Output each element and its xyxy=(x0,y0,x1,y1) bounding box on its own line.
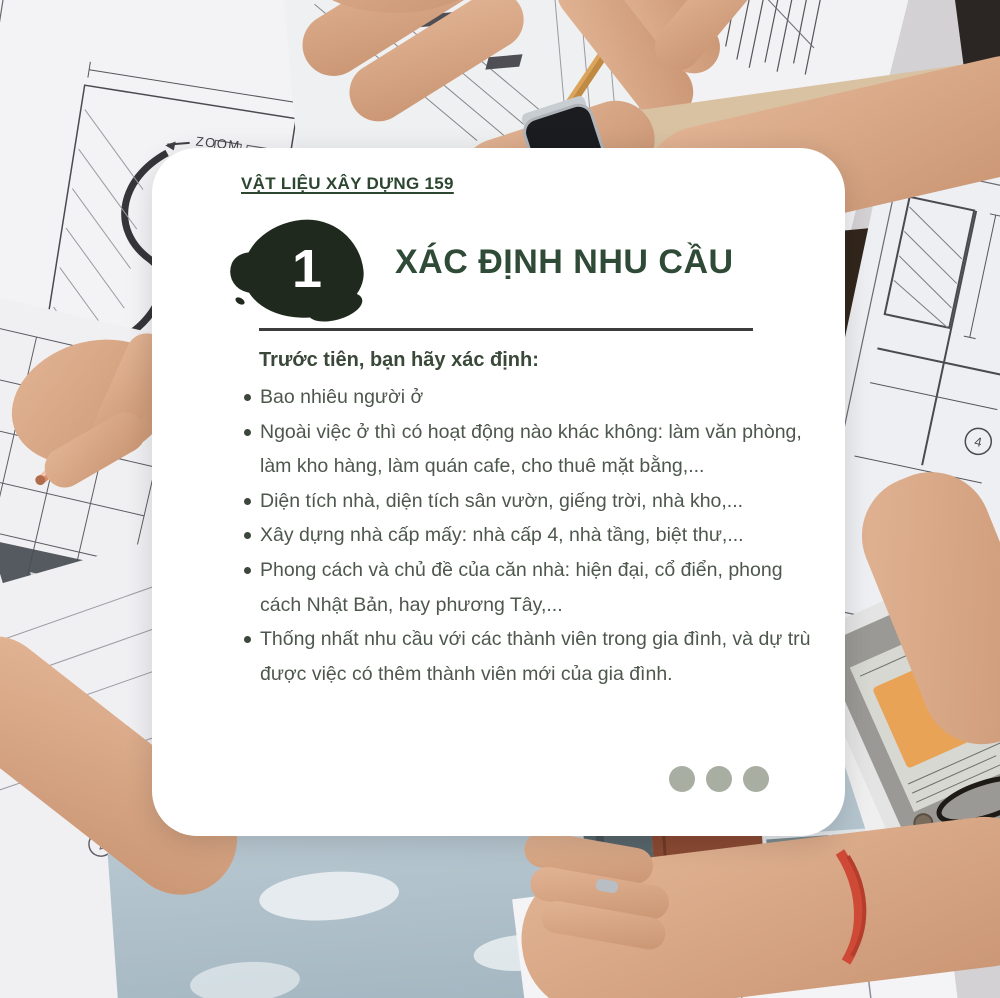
bullet-item: Ngoài việc ở thì có hoạt động nào khác k… xyxy=(243,415,829,484)
step-number: 1 xyxy=(243,220,363,318)
requirements-list: Bao nhiêu người ởNgoài việc ở thì có hoạ… xyxy=(243,380,829,691)
bullet-item: Bao nhiêu người ở xyxy=(243,380,829,415)
info-card: VẬT LIỆU XÂY DỰNG 159 1 XÁC ĐỊNH NHU CẦU… xyxy=(152,148,845,836)
carousel-dot[interactable] xyxy=(743,766,769,792)
carousel-dot[interactable] xyxy=(706,766,732,792)
bullet-item: Phong cách và chủ đề của căn nhà: hiện đ… xyxy=(243,553,829,622)
step-title: XÁC ĐỊNH NHU CẦU xyxy=(395,243,734,282)
bullet-item: Xây dựng nhà cấp mấy: nhà cấp 4, nhà tần… xyxy=(243,518,829,553)
carousel-dots xyxy=(669,766,769,792)
bullet-item: Thống nhất nhu cầu với các thành viên tr… xyxy=(243,622,829,691)
content-section: Trước tiên, bạn hãy xác định: Bao nhiêu … xyxy=(243,346,829,691)
step-number-badge: 1 xyxy=(243,220,363,318)
intro-text: Trước tiên, bạn hãy xác định: xyxy=(259,346,829,374)
bullet-item: Diện tích nhà, diện tích sân vườn, giếng… xyxy=(243,484,829,519)
carousel-dot[interactable] xyxy=(669,766,695,792)
brand-title: VẬT LIỆU XÂY DỰNG 159 xyxy=(241,174,454,194)
divider-line xyxy=(259,328,753,331)
infographic-page: ZOOM xyxy=(0,0,1000,998)
